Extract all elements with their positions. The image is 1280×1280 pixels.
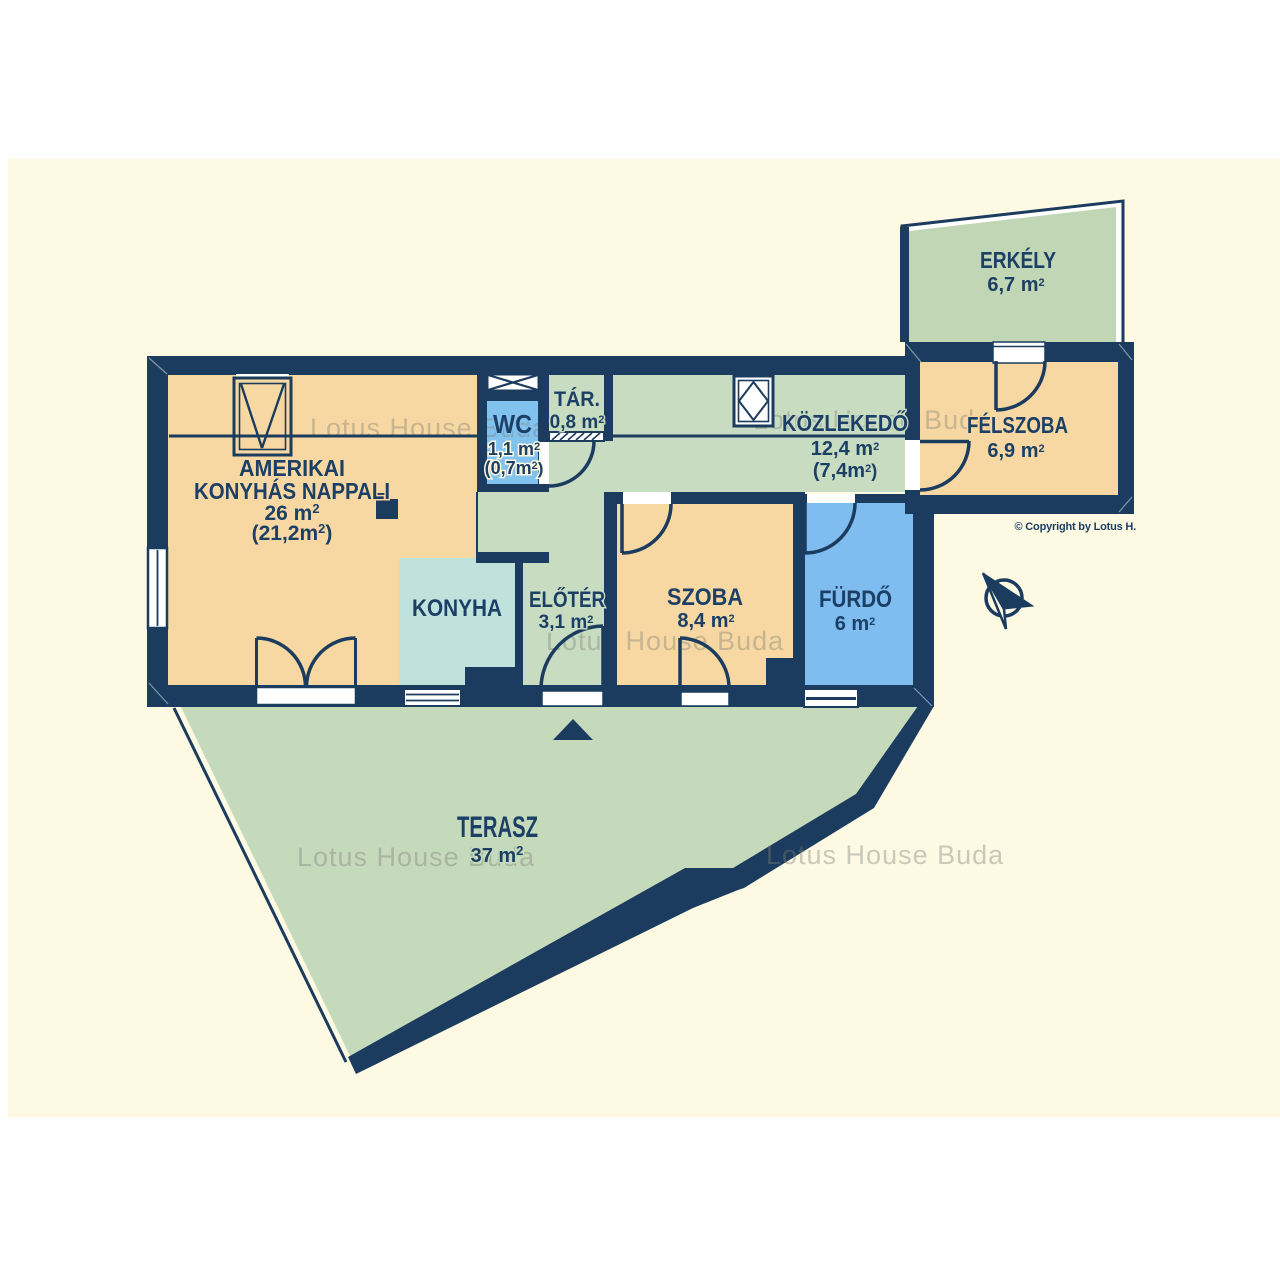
svg-text:8,4 m2: 8,4 m2 bbox=[677, 610, 734, 632]
svg-text:6,7 m2: 6,7 m2 bbox=[987, 274, 1044, 296]
svg-text:Lotus House Buda: Lotus House Buda bbox=[766, 840, 1004, 870]
svg-text:TERASZ: TERASZ bbox=[457, 811, 538, 844]
svg-text:KONYHÁS NAPPALI: KONYHÁS NAPPALI bbox=[194, 477, 390, 504]
svg-text:ERKÉLY: ERKÉLY bbox=[980, 246, 1056, 273]
svg-text:ELŐTÉR: ELŐTÉR bbox=[529, 587, 605, 612]
svg-text:12,4 m2: 12,4 m2 bbox=[811, 438, 879, 460]
svg-text:1,1 m2: 1,1 m2 bbox=[488, 439, 540, 459]
svg-text:KONYHA: KONYHA bbox=[412, 595, 502, 622]
svg-text:37 m2: 37 m2 bbox=[471, 843, 524, 867]
svg-text:KÖZLEKEDŐ: KÖZLEKEDŐ bbox=[782, 409, 908, 436]
svg-text:FÜRDŐ: FÜRDŐ bbox=[819, 585, 892, 613]
svg-text:3,1 m2: 3,1 m2 bbox=[539, 612, 594, 633]
svg-text:© Copyright by Lotus H.: © Copyright by Lotus H. bbox=[1015, 521, 1137, 533]
svg-text:0,8 m2: 0,8 m2 bbox=[550, 412, 605, 433]
svg-text:WC: WC bbox=[493, 409, 532, 439]
svg-text:6,9 m2: 6,9 m2 bbox=[987, 440, 1044, 462]
svg-text:FÉLSZOBA: FÉLSZOBA bbox=[967, 411, 1068, 438]
svg-text:SZOBA: SZOBA bbox=[667, 584, 743, 611]
svg-text:TÁR.: TÁR. bbox=[554, 388, 600, 411]
